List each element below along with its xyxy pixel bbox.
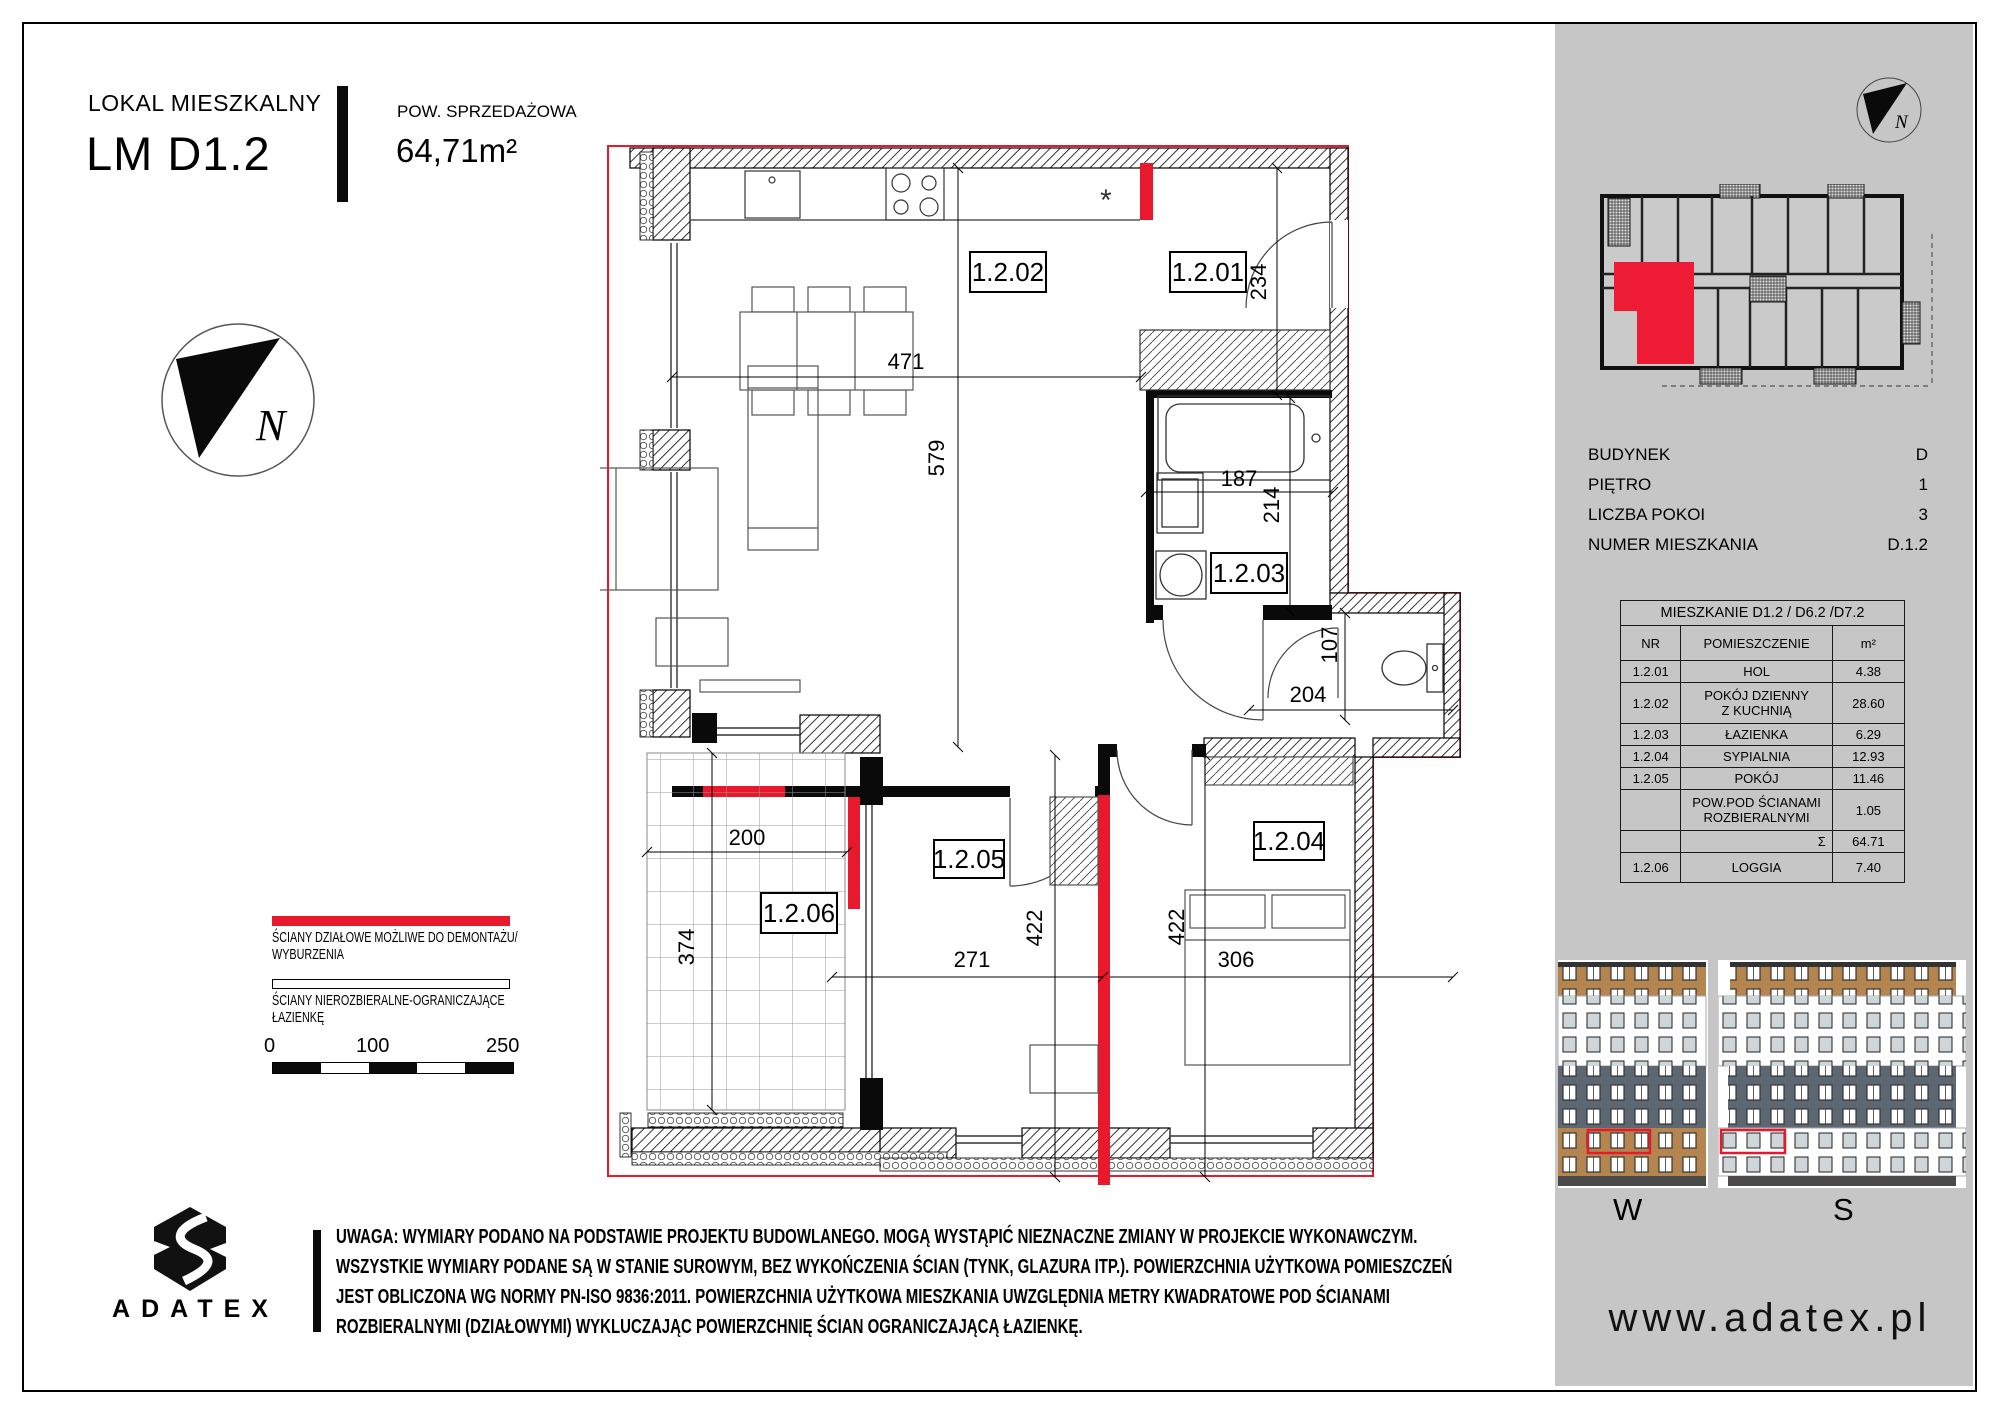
sales-area-value: 64,71m² [396,132,517,170]
disclaimer-text: UWAGA: WYMIARY PODANO NA PODSTAWIE PROJE… [336,1222,1469,1342]
info-row-floor: PIĘTRO1 [1588,470,1928,500]
hall-wardrobe [1140,330,1330,390]
table-row: POW.POD ŚCIANAMI ROZBIERALNYMI1.05 [1621,790,1905,831]
room-label-1206: 1.2.06 [763,898,835,928]
dim-374: 374 [674,929,699,966]
legend-demolishable-swatch [272,916,510,926]
dim-271: 271 [954,947,991,972]
website-url: www.adatex.pl [1575,1296,1965,1341]
dim-214: 214 [1259,487,1284,524]
legend-demolishable-label: ŚCIANY DZIAŁOWE MOŻLIWE DO DEMONTAŻU/WYB… [272,929,518,963]
sidebar-compass-n: N [1894,112,1909,133]
elevation-label-west: W [1613,1192,1642,1228]
table-row: 1.2.05POKÓJ11.46 [1621,768,1905,790]
room-label-1204: 1.2.04 [1253,826,1325,856]
washer-icon [1157,473,1203,533]
unit-type-label: LOKAL MIESZKALNY [88,90,321,117]
dim-204: 204 [1290,682,1327,707]
doors [1010,220,1348,886]
disclaimer-bar [313,1230,321,1332]
table-row-sum: Σ64.71 [1621,831,1905,853]
fridge-symbol: * [1100,184,1112,217]
dim-200: 200 [729,825,766,850]
room-label-1205: 1.2.05 [933,844,1005,874]
room-label-1201: 1.2.01 [1172,257,1244,287]
floor-plan: * [600,140,1480,1190]
dim-187: 187 [1221,466,1258,491]
dim-471: 471 [888,349,925,374]
info-row-building: BUDYNEKD [1588,440,1928,470]
bath-sink-icon [1156,551,1206,599]
dim-107: 107 [1317,627,1342,664]
info-row-rooms: LICZBA POKOI3 [1588,500,1928,530]
table-row: 1.2.03ŁAZIENKA6.29 [1621,724,1905,746]
sales-area-label: POW. SPRZEDAŻOWA [397,102,577,122]
scale-bar [272,1062,514,1074]
room-label-1202: 1.2.02 [972,257,1044,287]
table-row: 1.2.02POKÓJ DZIENNY Z KUCHNIĄ28.60 [1621,683,1905,724]
unit-code: LM D1.2 [86,126,271,181]
dim-306: 306 [1218,947,1255,972]
legend-fixed-label: ŚCIANY NIEROZBIERALNE-OGRANICZAJĄCEŁAZIE… [272,992,505,1026]
north-compass-icon: N [160,322,316,478]
dim-579: 579 [924,440,949,477]
bedroom-furniture [1185,757,1353,1065]
scale-labels: 0 100 250 [264,1035,520,1055]
sidebar: N [1555,24,1973,1386]
elevation-south [1718,960,1966,1188]
room-label-1203: 1.2.03 [1213,558,1285,588]
info-row-number: NUMER MIESZKANIAD.1.2 [1588,530,1928,560]
unit-info: BUDYNEKD PIĘTRO1 LICZBA POKOI3 NUMER MIE… [1588,440,1928,560]
legend-fixed-swatch [272,979,510,989]
toilet-icon [1382,644,1443,692]
sink-icon [745,171,800,218]
dim-234: 234 [1246,264,1271,301]
page: LOKAL MIESZKALNY LM D1.2 POW. SPRZEDAŻOW… [0,0,2000,1413]
brand-name: ADATEX [100,1295,280,1324]
dim-422-left: 422 [1022,910,1047,947]
compass-n-letter: N [255,401,288,450]
elevation-west [1558,960,1708,1188]
adatex-logo-icon [118,1205,263,1295]
rooms-table: MIESZKANIE D1.2 / D6.2 /D7.2 NR POMIESZC… [1620,600,1905,883]
elevation-label-south: S [1833,1192,1854,1228]
table-row: 1.2.04SYPIALNIA12.93 [1621,746,1905,768]
sidebar-compass-icon: N [1855,76,1923,144]
rooms-table-title: MIESZKANIE D1.2 / D6.2 /D7.2 [1621,601,1905,626]
table-row: 1.2.01HOL4.38 [1621,661,1905,683]
kitchen-fixtures: * [690,168,1140,220]
table-row: 1.2.06LOGGIA7.40 [1621,853,1905,883]
key-plan [1600,184,1945,399]
dim-422-right: 422 [1164,909,1189,946]
title-divider [337,86,348,202]
